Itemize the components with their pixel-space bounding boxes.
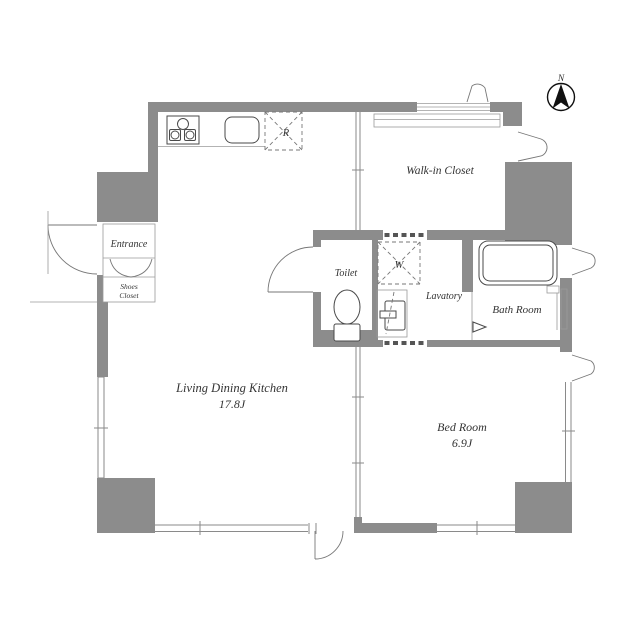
compass: N [548, 74, 575, 111]
toilet-fixture [334, 290, 360, 341]
entrance-door-arc [48, 225, 97, 274]
refrigerator-label: R [282, 128, 290, 139]
refrigerator-space: R [265, 112, 302, 150]
walls [97, 102, 572, 533]
window-south-bedroom [437, 521, 515, 535]
closet-east-door-arc [518, 132, 547, 161]
ldk-balcony-door-arc [315, 531, 343, 559]
entrance-label: Entrance [110, 239, 148, 250]
window-west-ldk [94, 377, 108, 478]
toilet-door-arc [268, 247, 313, 292]
north-label: N [557, 74, 565, 84]
north-arrow-icon [553, 84, 570, 109]
vanity-sink [377, 290, 407, 337]
shoes-closet-door-arcs [110, 259, 152, 277]
bathtub-icon [479, 241, 557, 285]
partition-closet-ldk [352, 112, 364, 230]
closet-shelf [374, 114, 500, 127]
lavatory-label: Lavatory [425, 291, 463, 302]
partition-ldk-bedroom [352, 347, 364, 523]
kitchen-sink-icon [225, 117, 259, 143]
ldk-area-label: 17.8J [219, 397, 246, 411]
bedroom-area-label: 6.9J [452, 436, 473, 450]
floor-plan: R W N Entrance Sh [0, 0, 640, 640]
room-labels: Entrance Shoes Closet Toilet Lavatory Ba… [110, 165, 542, 450]
shoes-closet-label-1: Shoes [120, 282, 138, 291]
shoes-closet-label-2: Closet [119, 291, 139, 300]
kitchen: R [158, 112, 302, 150]
washer-label: W [395, 260, 405, 271]
bedroom-east-door-arc [572, 355, 594, 381]
bedroom-label: Bed Room [437, 420, 487, 434]
bath-door-mark [473, 322, 486, 332]
washing-machine-space: W [378, 242, 420, 284]
bath-room-label: Bath Room [492, 304, 541, 316]
walk-in-closet-label: Walk-in Closet [406, 165, 474, 177]
wall-block-east [505, 162, 572, 245]
pillar-southwest [97, 478, 155, 533]
bath-east-window-arc [572, 248, 595, 275]
pillar-southeast [515, 482, 572, 533]
ldk-label: Living Dining Kitchen [175, 381, 288, 395]
window-east-bedroom [562, 382, 575, 482]
toilet-label: Toilet [335, 268, 358, 279]
closet-top-window-arc [467, 84, 488, 102]
window-south-ldk [155, 521, 308, 535]
floor-plan-page: R W N Entrance Sh [0, 0, 640, 640]
